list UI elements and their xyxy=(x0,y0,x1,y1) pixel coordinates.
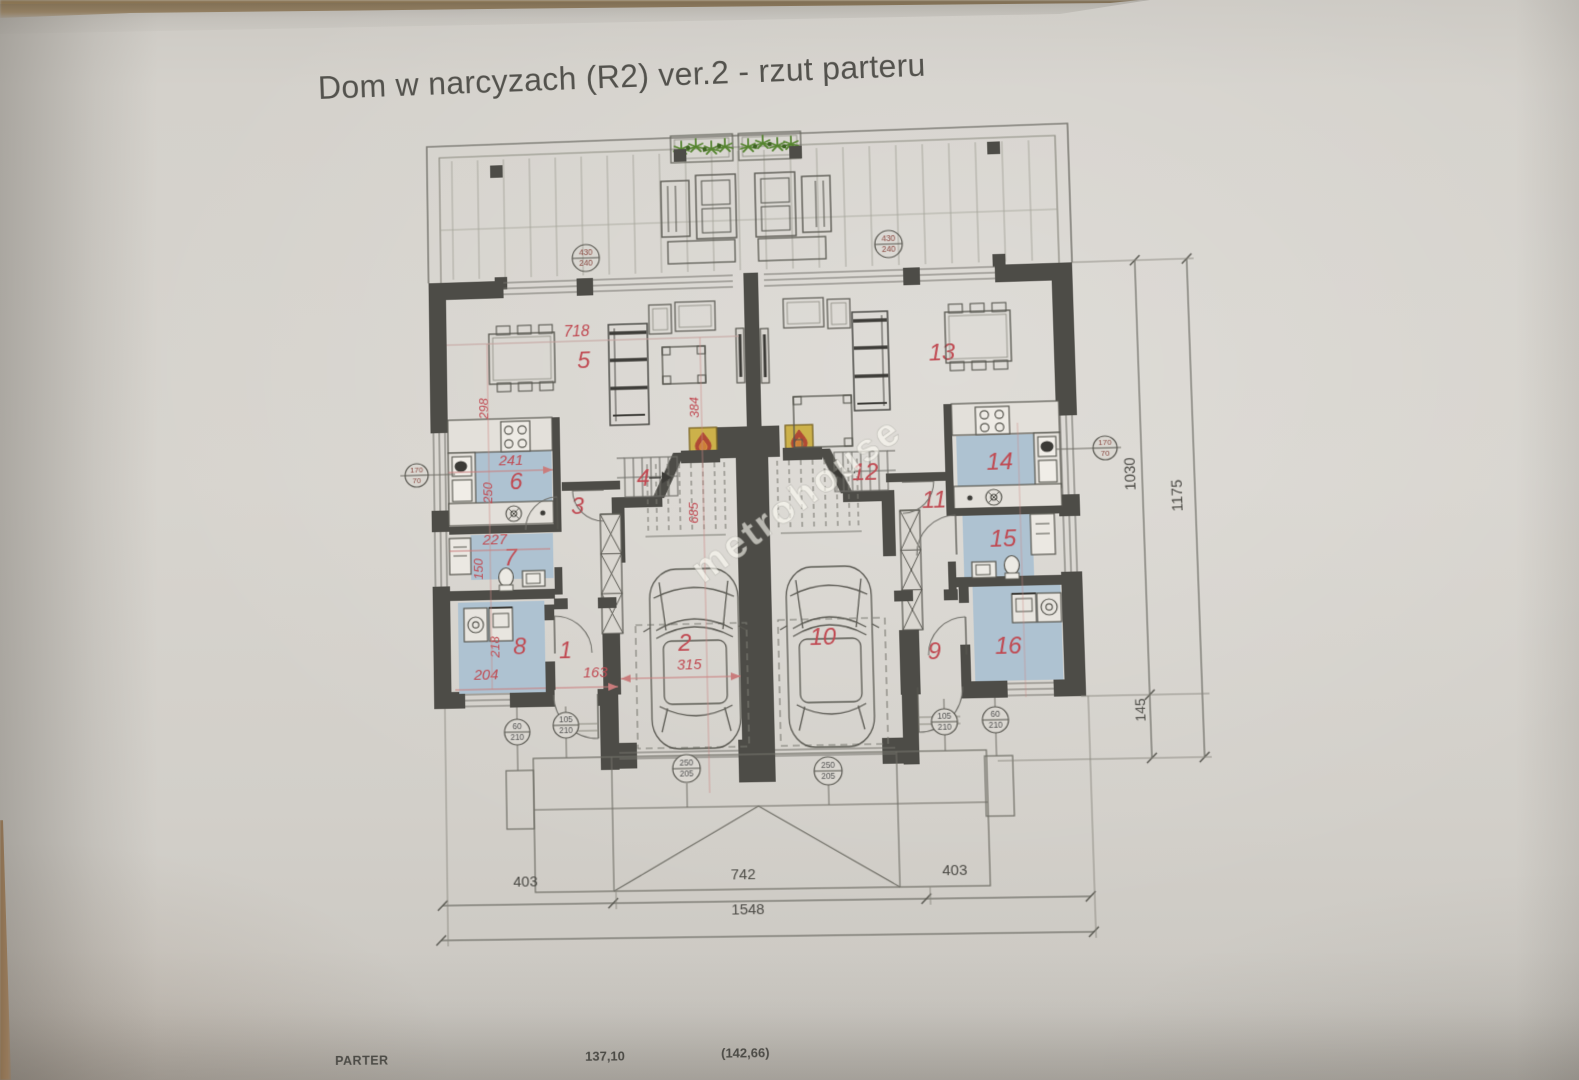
svg-text:1030: 1030 xyxy=(1120,457,1138,491)
svg-text:60: 60 xyxy=(512,722,522,732)
svg-text:210: 210 xyxy=(559,726,574,736)
svg-text:718: 718 xyxy=(563,323,590,340)
svg-text:210: 210 xyxy=(988,720,1003,730)
svg-text:403: 403 xyxy=(942,861,968,879)
svg-text:1548: 1548 xyxy=(731,900,765,918)
svg-text:8: 8 xyxy=(513,633,527,660)
svg-text:227: 227 xyxy=(482,530,509,547)
svg-text:250: 250 xyxy=(821,760,836,770)
svg-text:298: 298 xyxy=(476,398,491,421)
svg-text:205: 205 xyxy=(821,771,836,781)
svg-text:403: 403 xyxy=(513,872,538,890)
svg-text:240: 240 xyxy=(579,258,593,268)
svg-text:16: 16 xyxy=(995,632,1023,659)
svg-text:218: 218 xyxy=(488,636,503,659)
svg-text:105: 105 xyxy=(937,711,952,721)
svg-text:150: 150 xyxy=(471,558,486,580)
svg-text:2: 2 xyxy=(677,629,692,656)
svg-text:70: 70 xyxy=(1101,448,1110,458)
svg-text:210: 210 xyxy=(510,732,525,742)
svg-text:6: 6 xyxy=(509,468,523,495)
svg-text:685: 685 xyxy=(686,502,701,524)
svg-text:250: 250 xyxy=(679,758,694,768)
svg-text:170: 170 xyxy=(1098,437,1112,447)
svg-text:384: 384 xyxy=(687,396,702,418)
svg-text:742: 742 xyxy=(731,865,756,883)
svg-text:250: 250 xyxy=(481,482,496,505)
svg-text:15: 15 xyxy=(989,525,1017,552)
svg-text:163: 163 xyxy=(583,663,608,680)
svg-text:210: 210 xyxy=(937,722,952,732)
svg-text:204: 204 xyxy=(473,666,499,683)
svg-text:105: 105 xyxy=(559,715,574,725)
svg-text:241: 241 xyxy=(498,451,523,468)
svg-text:315: 315 xyxy=(677,655,702,673)
svg-text:205: 205 xyxy=(680,769,695,779)
svg-text:7: 7 xyxy=(504,544,519,571)
svg-text:70: 70 xyxy=(412,476,421,486)
svg-text:14: 14 xyxy=(986,448,1013,475)
svg-text:11: 11 xyxy=(921,486,946,513)
svg-text:1: 1 xyxy=(559,637,572,664)
svg-text:430: 430 xyxy=(881,234,896,244)
svg-text:1175: 1175 xyxy=(1167,479,1185,512)
svg-text:430: 430 xyxy=(579,248,593,258)
svg-text:170: 170 xyxy=(410,465,423,475)
svg-text:5: 5 xyxy=(577,347,591,373)
svg-text:145: 145 xyxy=(1132,698,1149,722)
svg-text:9: 9 xyxy=(927,638,941,665)
svg-text:240: 240 xyxy=(882,244,897,254)
svg-text:10: 10 xyxy=(809,623,837,650)
svg-text:60: 60 xyxy=(990,709,1000,719)
svg-text:4: 4 xyxy=(637,465,651,492)
